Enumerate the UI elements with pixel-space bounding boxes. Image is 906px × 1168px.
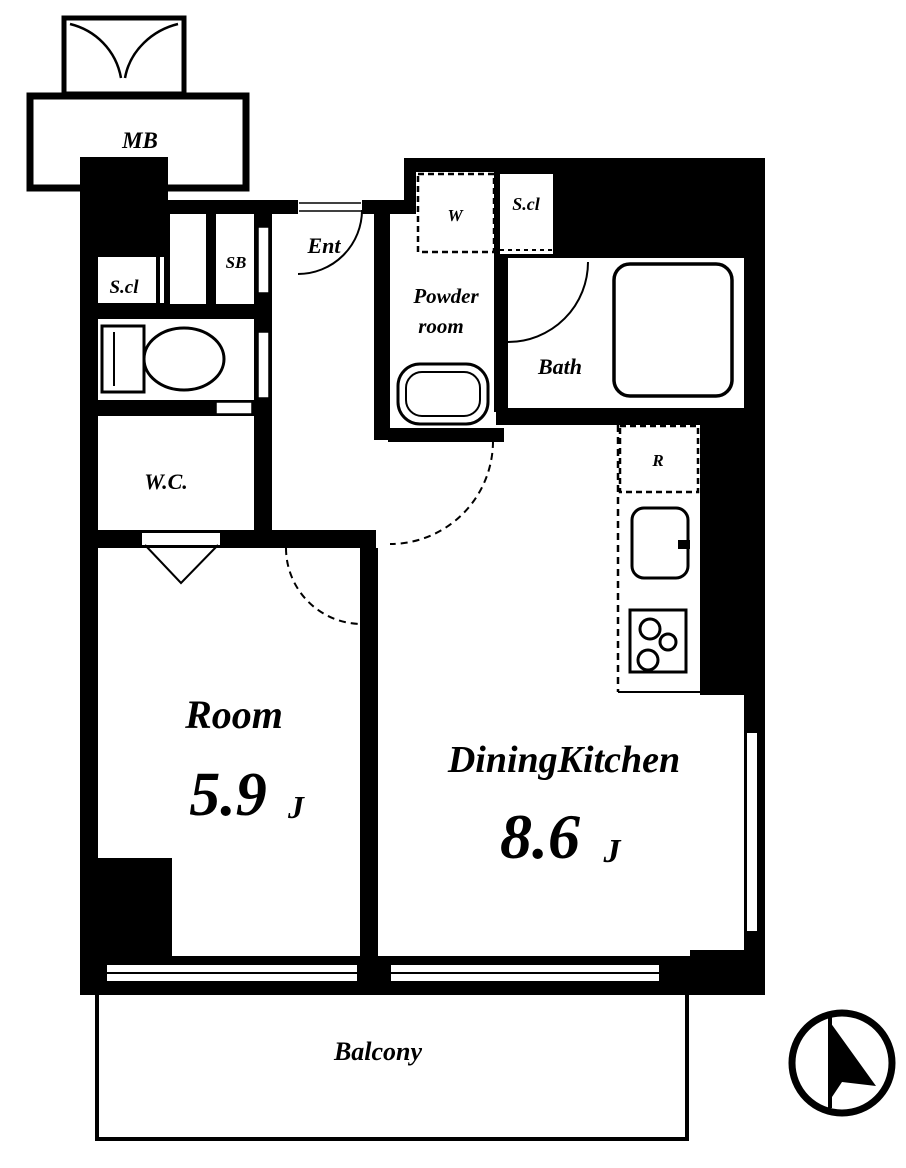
balcony-outline <box>97 995 687 1139</box>
room-label: Room <box>184 692 283 737</box>
shoe-box-label: SB <box>226 253 247 272</box>
toilet-icon <box>102 326 224 392</box>
floor-plan: MB S.cl SB Ent W.C. S.cl Powder room Bat… <box>0 0 906 1168</box>
entrance-label: Ent <box>306 233 341 258</box>
washbasin-icon <box>398 364 488 424</box>
door-swing-arc <box>125 24 178 78</box>
bath-label: Bath <box>537 354 582 379</box>
folding-door-mark <box>145 545 218 583</box>
closet-left-label: S.cl <box>109 277 139 298</box>
dining-kitchen-label: DiningKitchen <box>447 739 680 781</box>
room-size-unit: J <box>287 789 305 825</box>
door-swing-arc <box>70 24 121 78</box>
bath-door-arc <box>508 262 588 342</box>
room-size-value: 5.9 <box>189 761 267 829</box>
dk-size-unit: J <box>603 833 622 870</box>
powder-room-label-1: Powder <box>412 284 479 308</box>
closet-top-label: S.cl <box>512 194 540 214</box>
kitchen-sink-icon <box>632 508 690 578</box>
wc-label: W.C. <box>144 469 188 494</box>
faucet-icon <box>678 540 690 549</box>
balcony-label: Balcony <box>333 1037 423 1066</box>
compass-needle <box>830 1022 876 1100</box>
powder-room-label-2: room <box>418 314 464 338</box>
stove-icon <box>630 610 686 672</box>
dk-size-value: 8.6 <box>500 801 580 872</box>
meter-box-label: MB <box>121 128 158 153</box>
dk-door-arc <box>390 441 493 544</box>
refrigerator-label: R <box>651 451 663 470</box>
floor-plan-canvas: MB S.cl SB Ent W.C. S.cl Powder room Bat… <box>0 0 906 1168</box>
washer-label: W <box>447 206 464 225</box>
compass-icon <box>792 1013 892 1113</box>
bathtub-icon <box>614 264 732 396</box>
room-door-arc <box>286 548 362 624</box>
